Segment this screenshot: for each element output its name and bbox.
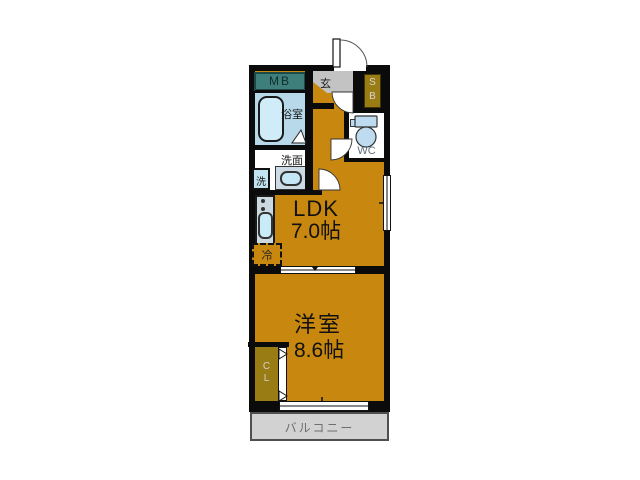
wall-below-genkan [309, 103, 334, 109]
washroom-label: 洗面 [281, 152, 303, 168]
stove-burner-dot [261, 207, 265, 211]
ldk-name: LDK [278, 198, 354, 220]
balcony-label: バルコニー [250, 419, 389, 436]
closet-folding-door [278, 347, 287, 401]
shoe-box-label-top: S [364, 76, 381, 90]
shoe-box-label-bottom: B [364, 90, 381, 104]
washer-label: 洗 [252, 173, 270, 188]
entrance-door-arc [340, 40, 367, 67]
balcony-window [279, 401, 369, 411]
entry-door-opening [334, 65, 366, 71]
ldk-label: LDK 7.0帖 [278, 198, 354, 244]
closet-label: C L [255, 361, 278, 385]
closet-label-bottom: L [255, 373, 278, 385]
closet-label-top: C [255, 361, 278, 373]
side-window [383, 175, 391, 231]
bathroom-label: 浴室 [281, 106, 303, 122]
entrance-door-leaf [333, 39, 340, 67]
wc-label: WC [349, 145, 384, 157]
western-room-size: 8.6帖 [294, 338, 344, 364]
wall-vertical-wetarea [305, 71, 313, 195]
kitchen-sink [258, 212, 273, 239]
washbasin [280, 171, 302, 186]
meter-box-label: MB [254, 74, 306, 88]
sliding-door [280, 266, 356, 274]
entryway-label: 玄 [320, 75, 331, 91]
refrigerator-label: 冷 [252, 247, 282, 263]
shoe-box-label: S B [364, 76, 381, 104]
ldk-size: 7.0帖 [278, 220, 354, 244]
western-room-label: 洋室 8.6帖 [294, 312, 344, 364]
western-room-name: 洋室 [294, 312, 344, 338]
stove-burner-dot [261, 199, 265, 203]
